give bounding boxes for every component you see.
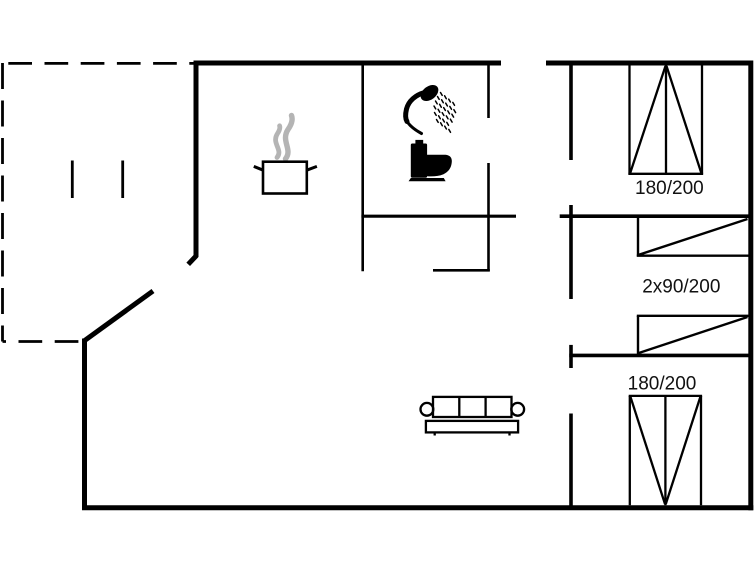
svg-text:2x90/200: 2x90/200 <box>642 276 720 297</box>
svg-text:180/200: 180/200 <box>635 178 704 199</box>
svg-text:180/200: 180/200 <box>628 374 697 395</box>
